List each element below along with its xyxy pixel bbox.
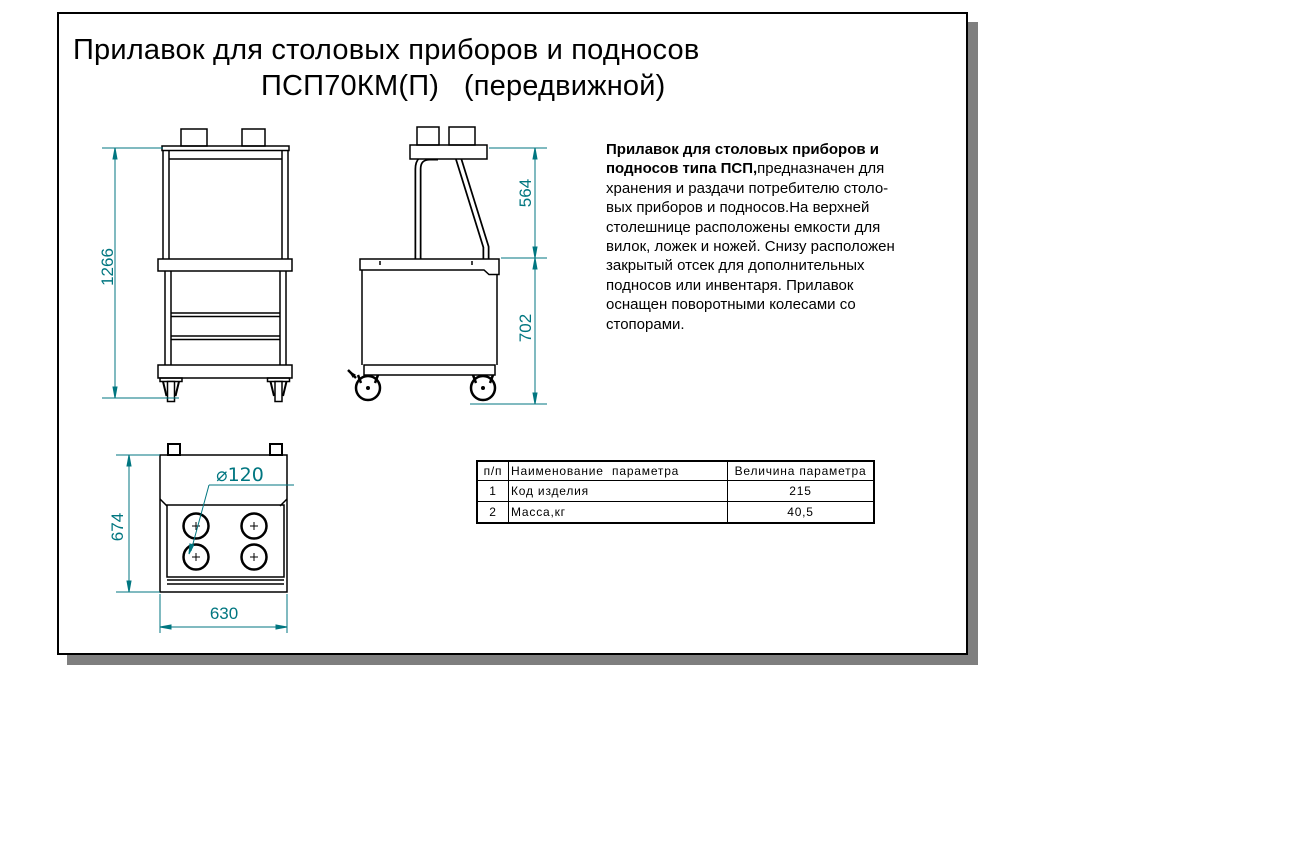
- front-posts: [163, 151, 288, 260]
- datasheet-canvas: Прилавок для столовых приборов и подносо…: [0, 0, 1308, 852]
- row-value: 215: [728, 481, 875, 502]
- description-line: Прилавок для столовых приборов и: [606, 140, 966, 159]
- side-body-walls: [362, 270, 497, 365]
- front-view-outline: [158, 129, 292, 402]
- product-description: Прилавок для столовых приборов и подносо…: [606, 140, 966, 334]
- description-line: оснащен поворотными колесами со: [606, 295, 966, 314]
- row-num: 1: [477, 481, 509, 502]
- description-line: вилок, ложек и ножей. Снизу расположен: [606, 237, 966, 256]
- description-line: закрытый отсек для дополнительных: [606, 256, 966, 275]
- description-line: столешнице расположены емкости для: [606, 218, 966, 237]
- description-line: подносов или инвентаря. Прилавок: [606, 276, 966, 295]
- description-line: подносов типа ПСП,предназначен для: [606, 159, 966, 178]
- description-line: стопорами.: [606, 315, 966, 334]
- side-left-container: [417, 127, 439, 145]
- front-top-bar: [162, 146, 289, 151]
- front-shelves: [171, 313, 280, 340]
- front-left-container: [181, 129, 207, 146]
- front-counter-band: [158, 259, 292, 271]
- top-depth-dimension-label: 674: [108, 513, 127, 541]
- header-value: Величина параметра: [728, 461, 875, 481]
- table-row: 1 Код изделия 215: [477, 481, 874, 502]
- side-view-drawing: 564 702: [342, 117, 572, 417]
- hole-diameter-label: ⌀120: [216, 464, 264, 486]
- front-dim-arrow-down: [113, 387, 117, 398]
- front-view-drawing: 1266: [89, 117, 329, 412]
- table-row: 2 Масса,кг 40,5: [477, 502, 874, 524]
- front-height-dimension-label: 1266: [98, 248, 117, 286]
- header-num: п/п: [477, 461, 509, 481]
- side-right-container: [449, 127, 475, 145]
- top-view-drawing: ⌀120 674 630: [102, 437, 352, 642]
- side-frame-tubes: [418, 157, 486, 260]
- side-countertop: [360, 259, 499, 275]
- table-header-row: п/п Наименование параметра Величина пара…: [477, 461, 874, 481]
- side-upper-height-dimension-label: 564: [516, 179, 535, 207]
- row-value: 40,5: [728, 502, 875, 524]
- hole-center-marks: [192, 522, 258, 561]
- header-name: Наименование параметра: [509, 461, 728, 481]
- side-top-plate: [410, 145, 487, 159]
- page-subtitle: ПСП70КМ(П) (передвижной): [261, 70, 666, 103]
- row-num: 2: [477, 502, 509, 524]
- front-right-container: [242, 129, 265, 146]
- cutlery-holes: [184, 514, 267, 570]
- top-dimensions: [116, 455, 294, 633]
- leader-arrow: [189, 544, 194, 554]
- front-body-walls: [165, 271, 286, 365]
- top-inner-panel: [167, 505, 284, 577]
- side-bottom-band: [364, 365, 495, 375]
- row-name: Масса,кг: [509, 502, 728, 524]
- top-front-edge-lines: [167, 580, 284, 584]
- row-name: Код изделия: [509, 481, 728, 502]
- front-bottom-band: [158, 365, 292, 378]
- front-dim-arrow-up: [113, 148, 117, 159]
- description-line: хранения и раздачи потребителю столо-: [606, 179, 966, 198]
- top-left-tab: [168, 444, 180, 455]
- page-title: Прилавок для столовых приборов и подносо…: [73, 34, 699, 67]
- parameters-table: п/п Наименование параметра Величина пара…: [476, 460, 875, 524]
- side-view-outline: [348, 127, 499, 400]
- top-right-tab: [270, 444, 282, 455]
- side-right-caster: [471, 375, 495, 400]
- description-line: вых приборов и подносов.На верхней: [606, 198, 966, 217]
- side-body-height-dimension-label: 702: [516, 314, 535, 342]
- datasheet-page: Прилавок для столовых приборов и подносо…: [57, 12, 968, 655]
- front-right-caster: [268, 378, 290, 402]
- top-width-dimension-label: 630: [210, 604, 238, 623]
